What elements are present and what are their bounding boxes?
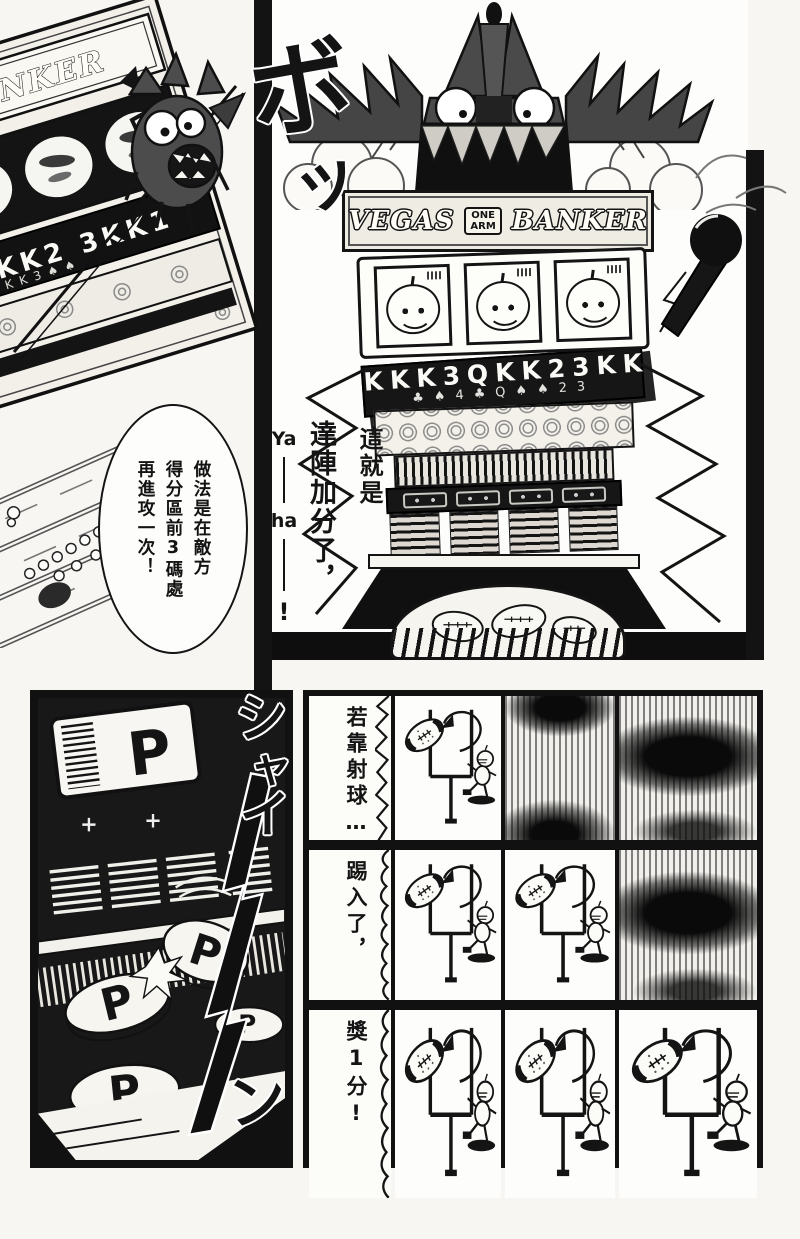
row-label-cell: 獎1分! (309, 1010, 391, 1198)
screen-letter: P (124, 715, 175, 790)
reel-3 (554, 258, 633, 343)
motion-blur-minipanel (505, 696, 615, 840)
motion-blur-minipanel (619, 850, 757, 1000)
lever-arm-art (656, 212, 751, 337)
banner-one: ONE (471, 210, 495, 221)
speech-touchdown-bonus: 達陣加分了， (301, 420, 340, 594)
goalpost-minipanel (619, 1010, 757, 1198)
banner-one-arm: ONE ARM (464, 207, 501, 235)
row-cells (395, 1010, 757, 1198)
strategy-speech-bubble: 做法是在敵方 得分區前3碼處 再進攻一次！ (98, 404, 248, 654)
smiley-face-icon (565, 277, 621, 329)
machine-shelf (368, 554, 640, 569)
slat-column (449, 510, 500, 556)
strip-row-3: 獎1分! (309, 1010, 757, 1198)
goalpost-minipanel (505, 1010, 615, 1198)
goalpost-minipanel (395, 850, 501, 1000)
bubble-jag-edge (375, 1010, 391, 1198)
strip-row-1: 若靠射球… (309, 696, 757, 840)
slat-column (389, 512, 440, 558)
strategy-text: 做法是在敵方 得分區前3碼處 再進攻一次！ (131, 460, 215, 599)
goalpost-scene (395, 1010, 501, 1198)
goalpost-minipanel (395, 696, 501, 840)
smiley-face-icon (385, 283, 441, 335)
goalpost-scene (505, 1010, 615, 1198)
speech-ya-text: Ya (272, 428, 297, 450)
goalpost-scene (395, 696, 501, 840)
row-label-text: 獎1分! (341, 1010, 377, 1130)
reel-1 (374, 264, 453, 349)
goalpost-minipanel (395, 1010, 501, 1198)
row-label-text: 踢入了， (341, 850, 377, 964)
long-dash (283, 539, 286, 591)
reel-2 (464, 261, 543, 346)
field-goal-strip-grid: 若靠射球… (303, 690, 763, 1168)
banner-banker: BANKER (512, 206, 648, 236)
row-cells (395, 696, 757, 840)
row-label-text: 若靠射球… (341, 696, 377, 839)
bubble-jag-edge (375, 696, 391, 840)
goalpost-scene (505, 850, 615, 1000)
strip-row-2: 踢入了， (309, 850, 757, 1000)
row-label-cell: 若靠射球… (309, 696, 391, 840)
goalpost-scene (395, 850, 501, 1000)
sfx-shine-ya: ャ (250, 746, 292, 788)
smiley-face-icon (475, 280, 531, 332)
row-cells (395, 850, 757, 1000)
machine-button (455, 490, 499, 507)
sfx-shine-i: イ (240, 790, 290, 840)
speech-ya-ha: Ya ha ! (266, 428, 302, 626)
banner-vegas: VEGAS (348, 206, 454, 236)
machine-button (402, 492, 446, 509)
speech-ha-text: ha (271, 510, 297, 532)
flash-zigzag-right (632, 362, 737, 627)
goalpost-scene (619, 1010, 757, 1198)
speech-bang: ! (279, 598, 290, 626)
bubble-jag-edge (375, 850, 391, 1000)
machine-button (508, 488, 552, 505)
long-dash (283, 457, 286, 503)
sfx-shine-n: ン (224, 1068, 290, 1134)
slat-band (389, 506, 618, 558)
machine-button (561, 486, 605, 503)
slat-column (508, 508, 559, 554)
goalpost-minipanel (505, 850, 615, 1000)
sfx-burst-bo: ボ (242, 32, 360, 150)
manga-page: BANKER KK2 3KK1 KK3♠♠ (0, 0, 800, 1239)
banner-arm: ARM (470, 221, 495, 232)
motion-blur-minipanel (619, 696, 757, 840)
slat-column (568, 506, 619, 552)
devil-bat-art (102, 50, 252, 245)
machine-banner: VEGAS ONE ARM BANKER (342, 190, 654, 252)
sfx-shine-shi: シ (233, 689, 290, 746)
row-label-cell: 踢入了， (309, 850, 391, 1000)
speech-this-is: 這就是 (352, 426, 387, 507)
reel-window (356, 247, 649, 359)
